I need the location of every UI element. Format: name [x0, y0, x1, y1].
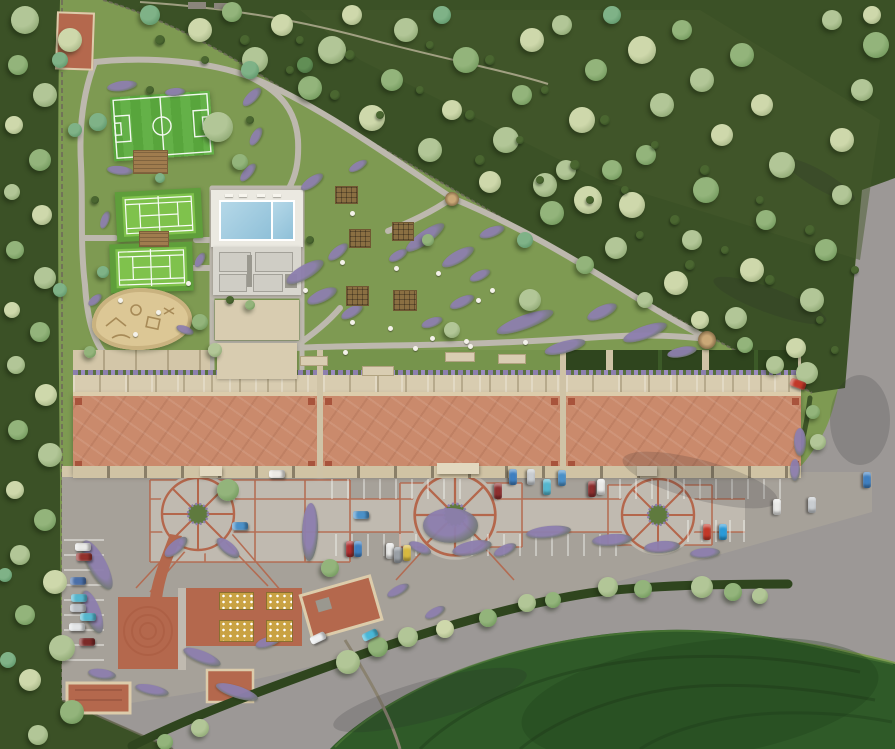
parked-car [346, 541, 354, 557]
tree [19, 669, 41, 691]
tree [691, 311, 709, 329]
parked-car [509, 469, 517, 485]
sun-lounger [239, 194, 247, 197]
parked-car [71, 594, 87, 602]
bush [756, 196, 764, 204]
sun-lounger [225, 194, 233, 197]
bush [570, 160, 580, 170]
tree [672, 20, 692, 40]
tree [737, 337, 753, 353]
parked-car [76, 553, 92, 561]
tree [751, 94, 773, 116]
bush [485, 55, 495, 65]
bush [700, 165, 710, 175]
pergola [346, 286, 369, 306]
tree [97, 266, 109, 278]
garden-gazebo-east [698, 331, 716, 349]
parked-car [353, 511, 369, 519]
tree [444, 322, 460, 338]
parked-car [558, 470, 566, 486]
tree [650, 93, 674, 117]
parked-car [719, 524, 727, 540]
tree [318, 36, 346, 64]
tree [6, 481, 24, 499]
tree [605, 237, 627, 259]
swimming-pool-main [221, 202, 271, 239]
tree [552, 15, 572, 35]
tree [863, 32, 889, 58]
tree [693, 177, 719, 203]
trellis-structure [266, 592, 293, 610]
bush [516, 136, 524, 144]
pergola [349, 229, 371, 248]
garden-table [523, 340, 528, 345]
garden-table [118, 298, 123, 303]
pergola [392, 222, 414, 241]
building2-roof [323, 392, 560, 474]
parked-car [70, 577, 86, 585]
flower-bed [423, 508, 478, 543]
tree [832, 185, 852, 205]
tree [576, 256, 594, 274]
garden-table [133, 332, 138, 337]
tree [637, 292, 653, 308]
parked-car [69, 623, 85, 631]
service-structure [188, 2, 206, 9]
tree [155, 173, 165, 183]
parked-car [494, 483, 502, 499]
tree [241, 61, 259, 79]
tree [60, 700, 84, 724]
garden-table [476, 298, 481, 303]
trellis-structure [219, 620, 254, 642]
bush [426, 41, 434, 49]
bush [416, 86, 424, 94]
tree [381, 69, 403, 91]
parked-car [773, 499, 781, 515]
clubhouse-room [219, 274, 247, 292]
garden-table [490, 288, 495, 293]
garden-table [350, 320, 355, 325]
tree [740, 258, 764, 282]
clubhouse-room [255, 252, 293, 272]
tree [730, 43, 754, 67]
tree [810, 434, 826, 450]
bush [240, 35, 250, 45]
parked-car [386, 543, 394, 559]
clubhouse-terrace-upper [215, 300, 299, 340]
tree [342, 5, 362, 25]
tree [634, 580, 652, 598]
tree [851, 79, 873, 101]
tree [192, 314, 208, 330]
pergola [335, 186, 358, 204]
garden-table [340, 260, 345, 265]
masterplan-scene [0, 0, 895, 749]
parked-car [79, 638, 95, 646]
tree [769, 152, 795, 178]
garden-table [303, 288, 308, 293]
tree [29, 149, 51, 171]
building-gap-walkway-1 [317, 350, 323, 478]
tree [479, 609, 497, 627]
bush [246, 116, 254, 124]
tree [157, 734, 173, 749]
bush [586, 196, 594, 204]
sun-lounger [273, 194, 281, 197]
bush [541, 86, 549, 94]
tree [49, 635, 75, 661]
tree [10, 545, 30, 565]
tree [43, 570, 67, 594]
tree [217, 479, 239, 501]
pool-deck [211, 190, 303, 247]
bush [765, 275, 775, 285]
garden-gazebo-north [445, 192, 459, 206]
parked-car [588, 481, 596, 497]
clubhouse-core [247, 255, 252, 287]
bush [146, 86, 154, 94]
entrance-canopy-2 [437, 463, 479, 474]
bush [345, 50, 355, 60]
garden-table [186, 281, 191, 286]
tree [4, 184, 20, 200]
tree [4, 302, 20, 318]
garden-table [388, 326, 393, 331]
tree [34, 267, 56, 289]
parked-car [354, 541, 362, 557]
bush [536, 176, 544, 184]
tree [806, 405, 820, 419]
tree [569, 107, 595, 133]
bush [330, 90, 340, 100]
tree [321, 559, 339, 577]
tree [7, 356, 25, 374]
bush [475, 155, 485, 165]
tennis-court-2 [109, 242, 194, 294]
pergola [393, 290, 417, 311]
garden-table [468, 344, 473, 349]
tree [545, 592, 561, 608]
tree [34, 509, 56, 531]
bush [286, 66, 294, 74]
bush [851, 266, 859, 274]
swimming-pool-kids [273, 202, 293, 239]
planter-box [498, 354, 526, 364]
bush [805, 225, 815, 235]
parked-car [75, 543, 91, 551]
tree [84, 346, 96, 358]
tree [453, 47, 479, 73]
tree [203, 112, 233, 142]
tree [297, 57, 313, 73]
bush [91, 196, 99, 204]
tree [598, 577, 618, 597]
bush [831, 346, 839, 354]
tree [418, 138, 442, 162]
tree [52, 52, 68, 68]
bush [201, 56, 209, 64]
tree [664, 271, 688, 295]
bush [600, 115, 610, 125]
tree [28, 725, 48, 745]
parked-car [394, 547, 402, 563]
bush [816, 316, 824, 324]
tree [619, 192, 645, 218]
tree [517, 232, 533, 248]
parked-car [703, 524, 711, 540]
tree [822, 10, 842, 30]
tree [33, 83, 57, 107]
tree [436, 620, 454, 638]
parked-car [863, 472, 871, 488]
building2-roof-terraces [323, 375, 560, 392]
tree [8, 55, 28, 75]
tree [752, 588, 768, 604]
tree [682, 230, 702, 250]
tree [520, 28, 544, 52]
tree [603, 6, 621, 24]
trellis-structure [219, 592, 254, 610]
garden-table [343, 350, 348, 355]
parked-car [80, 613, 96, 621]
tree [30, 322, 50, 342]
bush [296, 36, 304, 44]
tree [53, 283, 67, 297]
tree [35, 384, 57, 406]
tree [518, 594, 536, 612]
tree [336, 650, 360, 674]
tree-shadow [830, 375, 890, 465]
bush [465, 110, 475, 120]
tree [766, 356, 784, 374]
garden-table [413, 346, 418, 351]
wooden-deck [139, 231, 169, 247]
garden-table [430, 336, 435, 341]
trellis-structure [266, 620, 293, 642]
tree [5, 116, 23, 134]
bush [155, 35, 165, 45]
tree [188, 18, 212, 42]
tree [191, 719, 209, 737]
garden-table [436, 271, 441, 276]
planter-box [445, 352, 475, 362]
building3-roof-terraces [566, 375, 801, 392]
pool-clubhouse-complex [211, 190, 303, 380]
bush [376, 111, 384, 119]
bush [621, 186, 629, 194]
tree [724, 583, 742, 601]
entrance-canopy-1 [200, 466, 222, 476]
planter-box [300, 356, 328, 366]
apartment-building-2 [323, 350, 560, 478]
tree [786, 338, 806, 358]
tree [208, 343, 222, 357]
tree [0, 652, 16, 668]
tree [519, 289, 541, 311]
tree [298, 76, 322, 100]
tree [394, 18, 418, 42]
tree [815, 239, 837, 261]
parked-car [403, 545, 411, 561]
garden-table [156, 310, 161, 315]
flower-bed [794, 428, 806, 456]
bush [226, 296, 234, 304]
tree [398, 627, 418, 647]
tree [11, 6, 39, 34]
tree [58, 28, 82, 52]
parked-car [527, 469, 535, 485]
parked-car [543, 479, 551, 495]
tree [602, 160, 622, 180]
tree [6, 241, 24, 259]
clubhouse-terrace-lower [217, 343, 297, 379]
garden-table [394, 266, 399, 271]
bush [636, 231, 644, 239]
tree [711, 124, 733, 146]
bush [685, 260, 695, 270]
tree [32, 205, 52, 225]
bush [670, 215, 680, 225]
tree [271, 14, 293, 36]
tree [8, 420, 28, 440]
tree [232, 154, 248, 170]
parked-car [269, 470, 285, 478]
tree [89, 113, 107, 131]
tree [38, 443, 62, 467]
tree [756, 210, 776, 230]
bush [306, 236, 314, 244]
clubhouse-roofplan [213, 247, 301, 295]
sun-lounger [257, 194, 265, 197]
parked-car [232, 522, 248, 530]
garden-table [464, 339, 469, 344]
tree [725, 307, 747, 329]
tree [245, 300, 255, 310]
tree [691, 576, 713, 598]
tree [68, 123, 82, 137]
tree [140, 5, 160, 25]
tree [540, 201, 564, 225]
planter-box [362, 366, 394, 376]
tree [15, 605, 35, 625]
tree [479, 171, 501, 193]
tree [585, 59, 607, 81]
building1-roof [73, 392, 317, 474]
garden-table [350, 211, 355, 216]
clubhouse-room [253, 274, 283, 292]
parked-car [808, 497, 816, 513]
tree [433, 6, 451, 24]
wooden-deck [133, 150, 168, 174]
tree [512, 85, 532, 105]
parked-car [70, 604, 86, 612]
tree [863, 6, 881, 24]
tree [800, 288, 824, 312]
tree [222, 2, 242, 22]
tree [442, 100, 462, 120]
bush [721, 246, 729, 254]
tree [628, 36, 656, 64]
playground-sand-area [92, 288, 192, 350]
tree [422, 234, 434, 246]
bush [651, 141, 659, 149]
building-gap-walkway-2 [560, 350, 566, 478]
parked-car [597, 479, 605, 495]
tree [368, 637, 388, 657]
flower-bed [790, 459, 800, 481]
tree [830, 128, 854, 152]
tree [690, 68, 714, 92]
